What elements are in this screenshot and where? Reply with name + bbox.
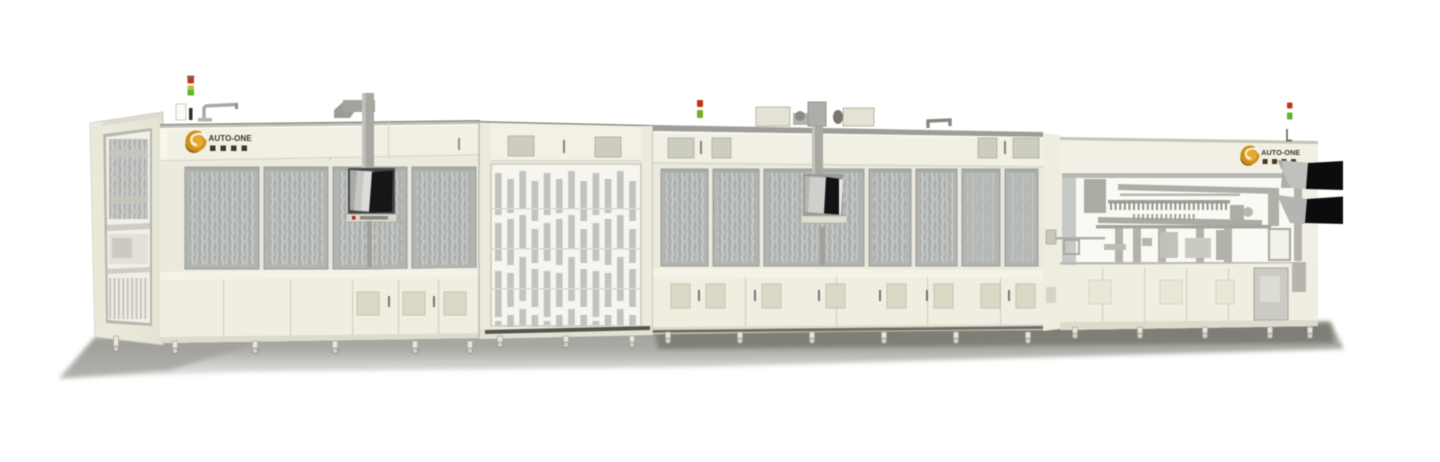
svg-text:AUTO-ONE: AUTO-ONE bbox=[1261, 148, 1300, 157]
svg-text:AUTO-ONE: AUTO-ONE bbox=[209, 134, 253, 143]
